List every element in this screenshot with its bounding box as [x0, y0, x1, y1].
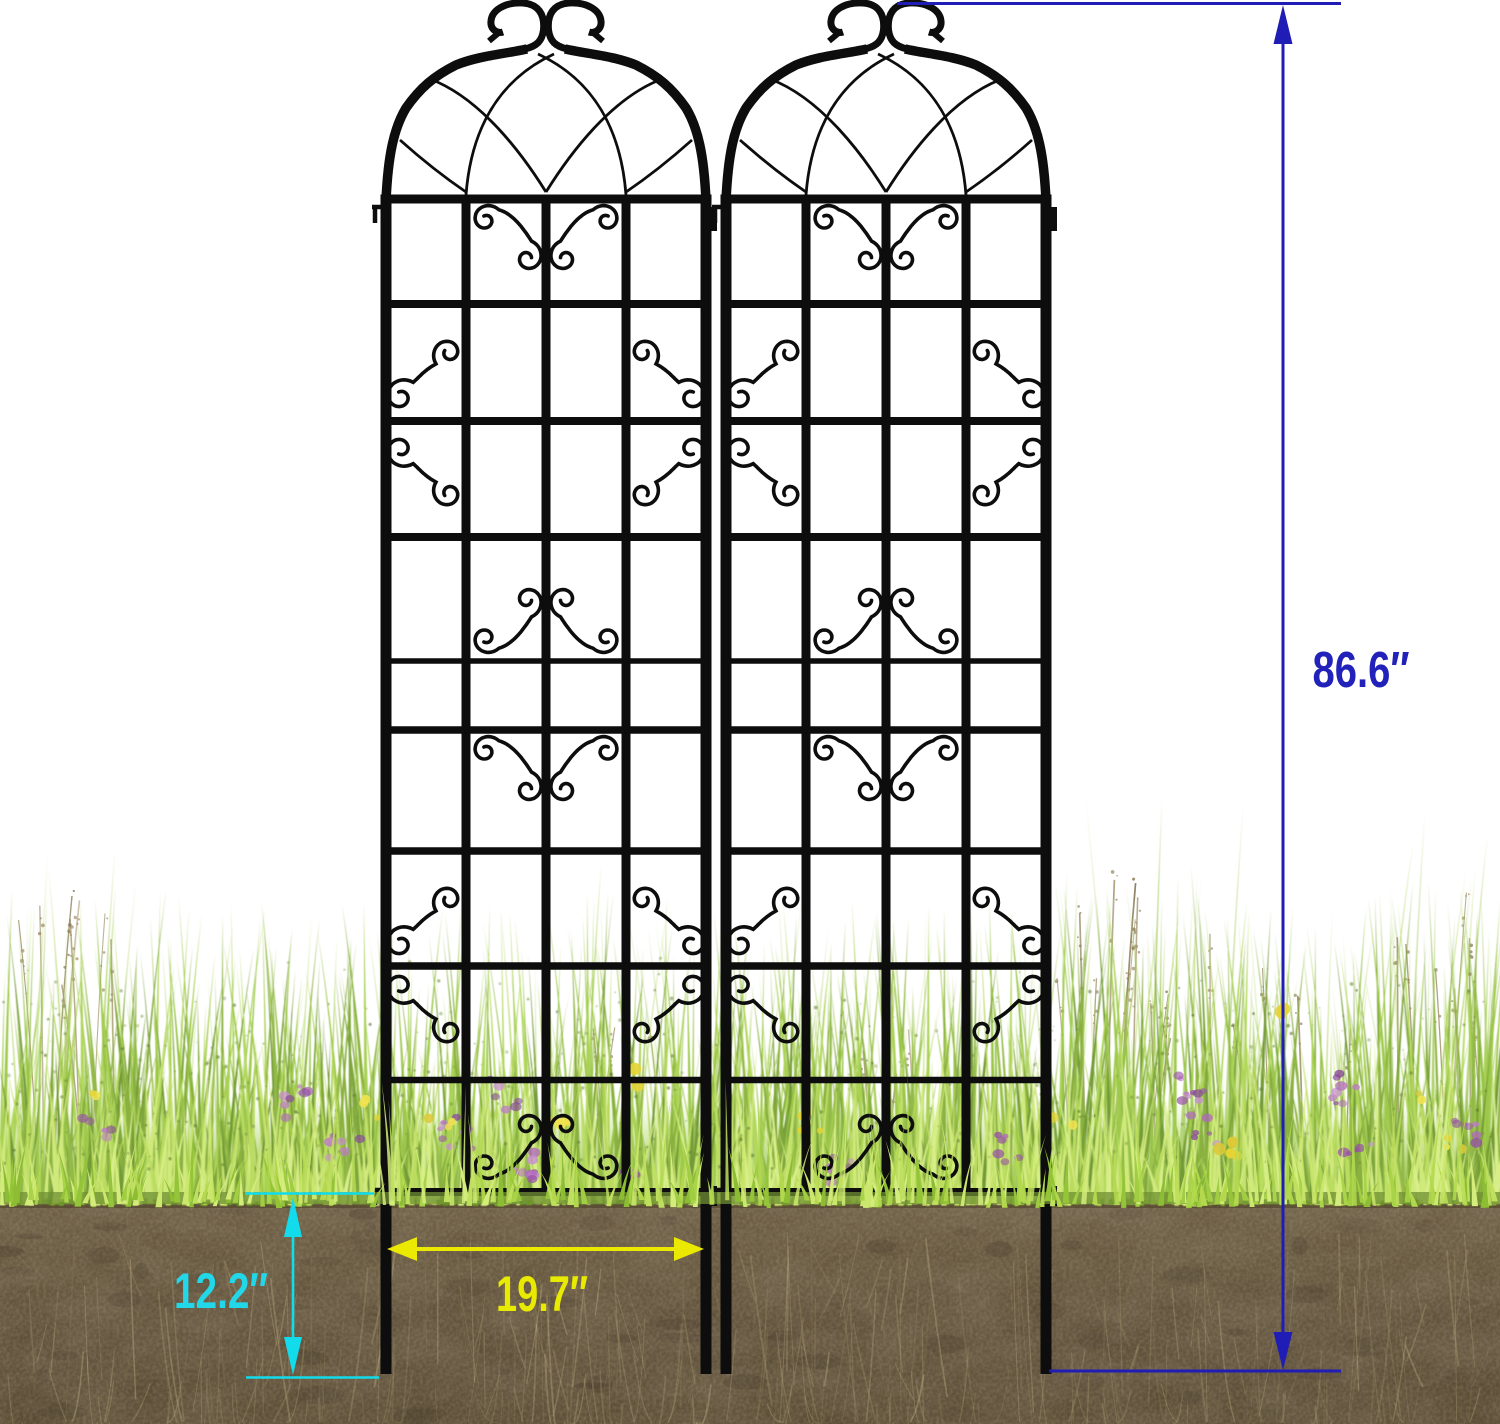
svg-text:86.6″: 86.6″: [1313, 641, 1410, 698]
svg-text:12.2″: 12.2″: [174, 1263, 268, 1319]
svg-text:19.7″: 19.7″: [496, 1266, 588, 1322]
